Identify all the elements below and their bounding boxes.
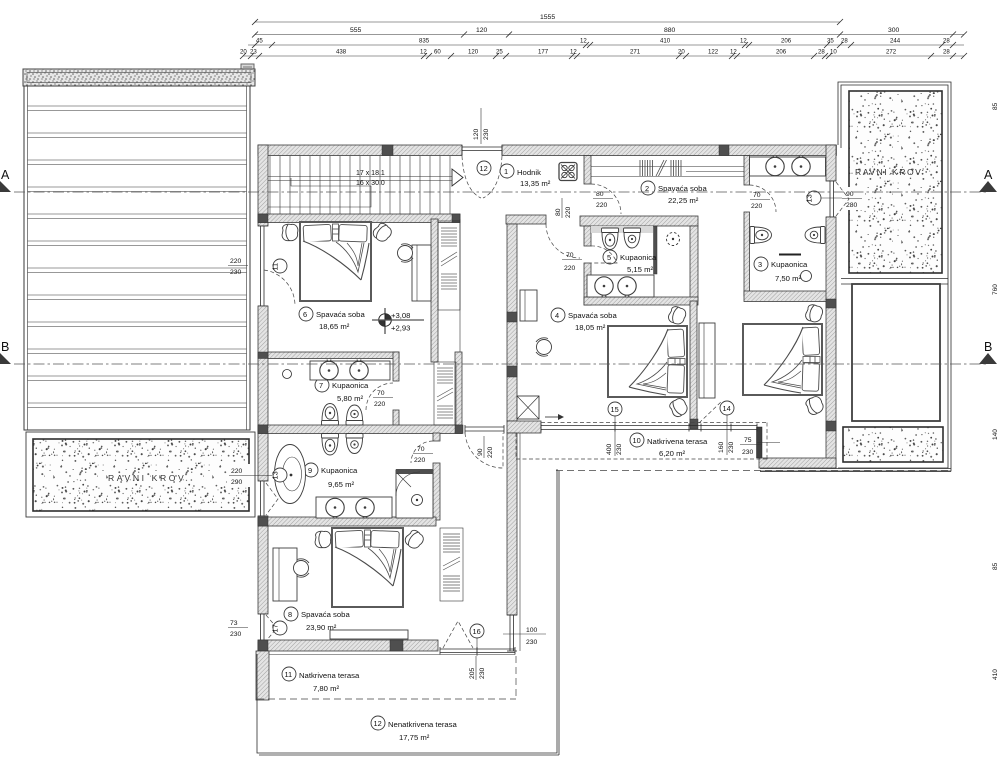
svg-text:16: 16 <box>473 627 481 636</box>
svg-text:12: 12 <box>580 38 587 45</box>
svg-text:220: 220 <box>565 206 572 218</box>
svg-text:177: 177 <box>538 49 549 56</box>
svg-text:Nenatkrivena terasa: Nenatkrivena terasa <box>388 720 458 729</box>
svg-text:A: A <box>1 168 10 182</box>
svg-text:410: 410 <box>660 38 671 45</box>
svg-text:Spavaća soba: Spavaća soba <box>316 310 365 319</box>
svg-text:7,80 m²: 7,80 m² <box>313 684 340 693</box>
svg-text:100: 100 <box>526 627 538 634</box>
svg-text:16 x 30.0: 16 x 30.0 <box>356 180 385 187</box>
svg-text:25: 25 <box>496 49 503 56</box>
svg-text:280: 280 <box>846 202 858 209</box>
svg-text:22,25 m²: 22,25 m² <box>668 196 699 205</box>
svg-text:230: 230 <box>616 443 623 455</box>
svg-text:6: 6 <box>303 310 307 319</box>
svg-text:10: 10 <box>830 49 837 56</box>
svg-text:220: 220 <box>564 265 576 272</box>
svg-text:206: 206 <box>781 38 792 45</box>
svg-text:35: 35 <box>827 38 834 45</box>
svg-text:835: 835 <box>419 38 430 45</box>
svg-text:11: 11 <box>271 263 280 271</box>
svg-text:RAVNI KROV: RAVNI KROV <box>108 473 186 483</box>
svg-text:12: 12 <box>420 49 427 56</box>
svg-text:230: 230 <box>479 667 486 679</box>
svg-text:RAVNI KROV: RAVNI KROV <box>855 167 922 177</box>
svg-text:A: A <box>984 168 993 182</box>
svg-text:760: 760 <box>992 284 999 295</box>
svg-text:Kupaonica: Kupaonica <box>620 253 657 262</box>
svg-text:12: 12 <box>740 38 747 45</box>
svg-text:120: 120 <box>468 49 479 56</box>
svg-text:70: 70 <box>753 192 761 199</box>
svg-text:60: 60 <box>434 49 441 56</box>
svg-text:5,80 m²: 5,80 m² <box>337 394 364 403</box>
svg-text:230: 230 <box>483 128 490 140</box>
svg-text:230: 230 <box>742 449 754 456</box>
svg-text:28: 28 <box>943 49 950 56</box>
svg-text:85: 85 <box>992 562 999 570</box>
svg-text:9: 9 <box>308 466 312 475</box>
svg-text:20: 20 <box>240 49 247 56</box>
svg-text:220: 220 <box>230 258 242 265</box>
svg-text:12: 12 <box>374 719 382 728</box>
svg-text:244: 244 <box>890 38 901 45</box>
svg-text:220: 220 <box>751 203 763 210</box>
svg-text:220: 220 <box>596 202 608 209</box>
svg-text:70: 70 <box>377 390 385 397</box>
svg-text:120: 120 <box>473 128 480 140</box>
svg-text:230: 230 <box>728 441 735 453</box>
svg-text:206: 206 <box>776 49 787 56</box>
svg-text:80: 80 <box>555 208 562 216</box>
svg-text:230: 230 <box>230 631 242 638</box>
svg-text:10: 10 <box>633 436 641 445</box>
svg-text:160: 160 <box>718 441 725 453</box>
svg-text:140: 140 <box>992 429 999 440</box>
svg-text:70: 70 <box>566 252 574 259</box>
svg-text:220: 220 <box>487 446 494 458</box>
svg-text:Spavaća soba: Spavaća soba <box>568 311 617 320</box>
svg-text:45: 45 <box>256 38 263 45</box>
svg-text:B: B <box>984 340 992 354</box>
svg-text:290: 290 <box>231 479 243 486</box>
svg-text:13: 13 <box>271 471 280 479</box>
svg-text:5: 5 <box>607 253 611 262</box>
svg-text:400: 400 <box>606 443 613 455</box>
svg-text:271: 271 <box>630 49 641 56</box>
svg-text:18,65 m²: 18,65 m² <box>319 322 350 331</box>
svg-text:205: 205 <box>469 667 476 679</box>
svg-text:13: 13 <box>805 194 814 202</box>
svg-text:120: 120 <box>476 27 488 34</box>
svg-text:300: 300 <box>888 27 900 34</box>
svg-text:122: 122 <box>708 49 719 56</box>
svg-text:85: 85 <box>992 102 999 110</box>
svg-text:12: 12 <box>480 164 488 173</box>
svg-text:4: 4 <box>555 311 559 320</box>
svg-text:Kupaonica: Kupaonica <box>332 381 369 390</box>
svg-text:+3,08: +3,08 <box>391 311 410 320</box>
svg-text:7: 7 <box>319 381 323 390</box>
svg-text:17,75 m²: 17,75 m² <box>399 733 430 742</box>
svg-text:28: 28 <box>841 38 848 45</box>
svg-text:11: 11 <box>285 670 293 679</box>
svg-text:23: 23 <box>250 49 257 56</box>
svg-text:Natkrivena terasa: Natkrivena terasa <box>299 671 360 680</box>
svg-text:12: 12 <box>730 49 737 56</box>
svg-text:17: 17 <box>271 624 280 632</box>
svg-text:Hodnik: Hodnik <box>517 168 541 177</box>
svg-text:272: 272 <box>886 49 897 56</box>
svg-text:220: 220 <box>414 457 426 464</box>
svg-text:438: 438 <box>336 49 347 56</box>
svg-text:B: B <box>1 340 9 354</box>
svg-text:Natkrivena terasa: Natkrivena terasa <box>647 437 708 446</box>
svg-text:12: 12 <box>570 49 577 56</box>
svg-text:14: 14 <box>723 404 731 413</box>
svg-text:5,15 m²: 5,15 m² <box>627 265 654 274</box>
svg-text:1: 1 <box>504 167 508 176</box>
svg-text:70: 70 <box>417 446 425 453</box>
svg-text:1555: 1555 <box>540 14 555 21</box>
svg-text:7,50 m²: 7,50 m² <box>775 274 802 283</box>
svg-text:+2,93: +2,93 <box>391 324 410 333</box>
svg-text:75: 75 <box>744 437 752 444</box>
svg-text:220: 220 <box>374 401 386 408</box>
svg-text:18,05 m²: 18,05 m² <box>575 323 606 332</box>
svg-text:Kupaonica: Kupaonica <box>321 466 358 475</box>
svg-text:410: 410 <box>992 669 999 680</box>
svg-text:230: 230 <box>526 639 538 646</box>
svg-text:Spavaća soba: Spavaća soba <box>301 610 350 619</box>
svg-text:13,35 m²: 13,35 m² <box>520 179 551 188</box>
svg-text:73: 73 <box>230 620 238 627</box>
svg-text:3: 3 <box>758 260 762 269</box>
svg-text:6,20 m²: 6,20 m² <box>659 449 686 458</box>
svg-text:15: 15 <box>611 405 619 414</box>
svg-text:880: 880 <box>664 27 676 34</box>
svg-text:28: 28 <box>943 38 950 45</box>
svg-text:Kupaonica: Kupaonica <box>771 260 808 269</box>
svg-text:230: 230 <box>230 269 242 276</box>
svg-text:555: 555 <box>350 27 362 34</box>
svg-text:90: 90 <box>477 448 484 456</box>
svg-text:8: 8 <box>288 610 292 619</box>
svg-text:9,65 m²: 9,65 m² <box>328 480 355 489</box>
svg-text:17 x 18.1: 17 x 18.1 <box>356 170 385 177</box>
svg-text:220: 220 <box>231 468 243 475</box>
svg-text:20: 20 <box>678 49 685 56</box>
svg-text:28: 28 <box>818 49 825 56</box>
